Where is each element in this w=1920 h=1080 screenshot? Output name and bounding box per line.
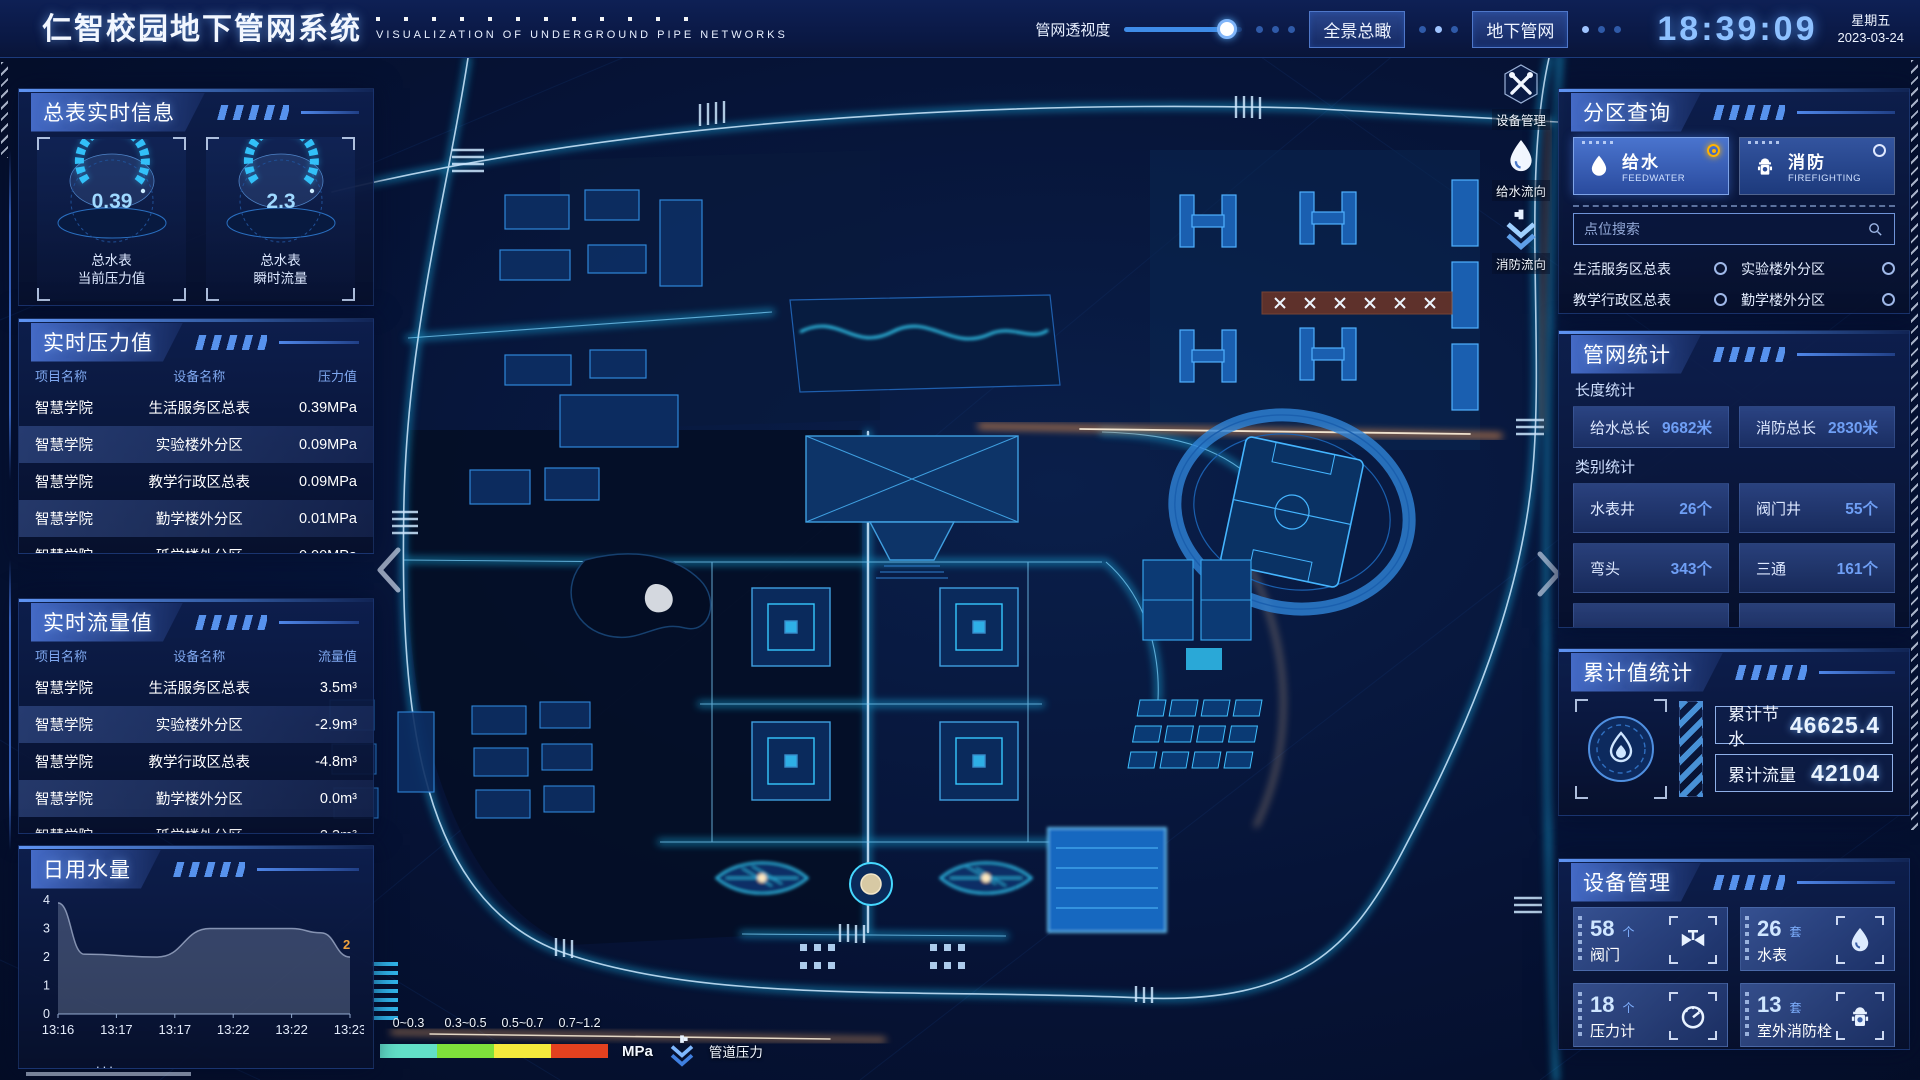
mode-sublabel: FIREFIGHTING: [1788, 173, 1861, 184]
project-cell: 智慧学院: [35, 677, 128, 698]
x-tick-label: 13:16: [42, 1022, 75, 1037]
firefighting-flow-tool[interactable]: 消防流向: [1492, 208, 1550, 274]
area-fill: [58, 903, 350, 1014]
svg-text:2.3: 2.3: [266, 190, 295, 213]
value-cell: -2.9m³: [270, 717, 357, 733]
left-edge-hatch: [1, 62, 8, 158]
mode-sublabel: FEEDWATER: [1622, 173, 1685, 184]
stat-label: 消防总长: [1756, 417, 1816, 438]
zone-item-label: 实验楼外分区: [1741, 259, 1825, 279]
stat-value: 2830米: [1828, 416, 1878, 438]
stat-value: 9682米: [1662, 416, 1712, 438]
legend-unit-label: MPa: [622, 1043, 653, 1060]
project-cell: 智慧学院: [35, 545, 128, 554]
cumulative-flow-row: 累计流量 42104: [1715, 754, 1893, 792]
top-bar: 仁智校园地下管网系统 VISUALIZATION OF UNDERGROUND …: [0, 0, 1920, 58]
table-row: 智慧学院教学行政区总表0.09MPa: [19, 463, 373, 500]
gauge-label: 总水表 瞬时流量: [206, 252, 355, 288]
table-row: 智慧学院砥学楼外分区0.00MPa: [19, 537, 373, 554]
pressure-table-body: 智慧学院生活服务区总表0.39MPa智慧学院实验楼外分区0.09MPa智慧学院教…: [19, 389, 373, 554]
legend-color-bar: [380, 1044, 608, 1058]
stat-chip: 水表井26个: [1573, 483, 1729, 533]
cumulative-saving-row: 累计节水 46625.4: [1715, 706, 1893, 744]
value-cell: 0.09MPa: [270, 437, 357, 453]
right-edge-hatch: [1911, 60, 1918, 830]
radio-icon: [1714, 262, 1727, 275]
device-cell: 实验楼外分区: [128, 714, 270, 735]
app-title: 仁智校园地下管网系统: [42, 4, 362, 48]
x-tick-label: 13:22: [275, 1022, 308, 1037]
project-cell: 智慧学院: [35, 471, 128, 492]
hydrant-icon: [1836, 992, 1884, 1040]
panel-title: 设备管理: [1571, 863, 1701, 902]
water-drop-icon: [1586, 153, 1612, 179]
flow-table-body: 智慧学院生活服务区总表3.5m³智慧学院实验楼外分区-2.9m³智慧学院教学行政…: [19, 669, 373, 834]
table-header: 项目名称 设备名称 流量值: [19, 639, 373, 669]
panel-title: 日用水量: [31, 850, 161, 889]
y-tick-label: 0: [43, 1007, 50, 1021]
pipe-ladder-decoration: [372, 962, 398, 1020]
device-management-panel: 设备管理 58个 阀门 26套 水表: [1558, 858, 1910, 1050]
dots-decoration: [1582, 26, 1621, 33]
stat-label: 水表井: [1590, 498, 1635, 519]
flow-arrows-icon: [667, 1034, 697, 1068]
value-cell: 0.01MPa: [270, 511, 357, 527]
project-cell: 智慧学院: [35, 825, 128, 834]
stripe-decoration: [1679, 701, 1703, 797]
device-cell: 教学行政区总表: [128, 751, 270, 772]
legend-color-segment: [380, 1044, 437, 1058]
slashes-decoration: [1713, 347, 1785, 362]
x-tick-label: 13:23: [334, 1022, 364, 1037]
device-cell: 教学行政区总表: [128, 471, 270, 492]
stat-chip: 阀门井55个: [1739, 483, 1895, 533]
gauge-label: 总水表 当前压力值: [37, 252, 186, 288]
device-management-tool[interactable]: 设备管理: [1492, 62, 1550, 130]
mode-label: 消防: [1788, 148, 1861, 173]
stat-chip: 弯头343个: [1573, 543, 1729, 593]
search-input[interactable]: 点位搜索: [1573, 213, 1895, 245]
legend-range-label: 0.3~0.5: [437, 1016, 494, 1030]
water-meter-icon: [1836, 916, 1884, 964]
slashes-decoration: [1713, 105, 1785, 120]
slider-knob[interactable]: [1217, 19, 1237, 39]
legend-color-segment: [551, 1044, 608, 1058]
stat-label: 阀门井: [1756, 498, 1801, 519]
legend-range-label: 0.5~0.7: [494, 1016, 551, 1030]
slashes-decoration: [1735, 665, 1807, 680]
device-cell: 砥学楼外分区: [128, 545, 270, 554]
table-row: 智慧学院生活服务区总表3.5m³: [19, 669, 373, 706]
app-subtitle: VISUALIZATION OF UNDERGROUND PIPE NETWOR…: [376, 29, 788, 41]
daily-water-panel: 日用水量 0123413:1613:1713:1713:2213:2213:23…: [18, 845, 374, 1069]
overview-button[interactable]: 全景总瞰: [1309, 11, 1405, 48]
radio-icon: [1882, 293, 1895, 306]
zone-item[interactable]: 生活服务区总表: [1573, 253, 1727, 284]
pressure-legend: 0~0.30.3~0.50.5~0.70.7~1.2 MPa 管道压力: [380, 1016, 767, 1068]
pipe-pressure-legend-item: 管道压力: [667, 1034, 767, 1068]
device-cell: 生活服务区总表: [128, 677, 270, 698]
panel-title: 分区查询: [1571, 93, 1701, 132]
zone-item-label: 教学行政区总表: [1573, 290, 1671, 310]
dots-decoration: [1256, 26, 1295, 33]
legend-flow-label: 管道压力: [705, 1040, 767, 1062]
section-title: 长度统计: [1559, 371, 1909, 406]
zone-item-label: 生活服务区总表: [1573, 259, 1671, 279]
table-header: 项目名称 设备名称 压力值: [19, 359, 373, 389]
hydrant-device-card[interactable]: 13套 室外消防栓: [1740, 983, 1895, 1047]
stat-chip: [1573, 603, 1729, 628]
slashes-decoration: [1713, 875, 1785, 890]
pressure-gauge-icon: [1669, 992, 1717, 1040]
mode-label: 给水: [1622, 148, 1685, 173]
value-cell: 0.0m³: [270, 791, 357, 807]
project-cell: 智慧学院: [35, 788, 128, 809]
zone-item[interactable]: 实验楼外分区: [1741, 253, 1895, 284]
valve-icon: [1669, 916, 1717, 964]
stat-label: 弯头: [1590, 558, 1620, 579]
underground-button[interactable]: 地下管网: [1472, 11, 1568, 48]
pressure-gauge-card: 0.39 总水表 当前压力值: [37, 137, 186, 301]
value-cell: 2.3m³: [270, 828, 357, 835]
clock-time: 18:39:09: [1657, 10, 1817, 49]
dots-decoration: [1419, 26, 1458, 33]
panel-title: 总表实时信息: [31, 93, 205, 132]
zone-item[interactable]: 勤学楼外分区: [1741, 284, 1895, 314]
project-cell: 智慧学院: [35, 434, 128, 455]
y-tick-label: 3: [43, 922, 50, 936]
gauge-dial-icon: 2.3: [215, 139, 347, 251]
table-row: 智慧学院勤学楼外分区0.01MPa: [19, 500, 373, 537]
value-cell: 0.09MPa: [270, 474, 357, 490]
legend-range-label: 0~0.3: [380, 1016, 437, 1030]
value-cell: 0.39MPa: [270, 400, 357, 416]
panel-title: 管网统计: [1571, 335, 1701, 374]
water-drop-icon: [1504, 137, 1538, 177]
dashed-divider: [1573, 205, 1895, 207]
search-icon[interactable]: [1867, 221, 1884, 238]
legend-range-label: 0.7~1.2: [551, 1016, 608, 1030]
daily-water-chart: 0123413:1613:1713:1713:2213:2213:232: [28, 892, 364, 1056]
valve-device-card[interactable]: 58个 阀门: [1573, 907, 1728, 971]
x-tick-label: 13:17: [159, 1022, 192, 1037]
transparency-slider-label: 管网透视度: [1035, 19, 1110, 40]
stat-value: 343个: [1671, 557, 1712, 579]
flow-gauge-card: 2.3 总水表 瞬时流量: [206, 137, 355, 301]
date-label: 2023-03-24: [1838, 29, 1905, 46]
left-scroll-track-lower: [9, 560, 11, 850]
x-tick-label: 13:17: [100, 1022, 133, 1037]
pan-left-arrow[interactable]: [372, 544, 406, 596]
project-cell: 智慧学院: [35, 397, 128, 418]
stat-label: 给水总长: [1590, 417, 1650, 438]
panel-title: 累计值统计: [1571, 653, 1723, 692]
water-meter-device-card[interactable]: 26套 水表: [1740, 907, 1895, 971]
radio-icon: [1714, 293, 1727, 306]
device-cell: 砥学楼外分区: [128, 825, 270, 834]
section-title: 类别统计: [1559, 448, 1909, 483]
radio-icon: [1882, 262, 1895, 275]
gauge-dial-icon: 0.39: [46, 139, 178, 251]
map-tool-stack: 设备管理 给水流向 消防流向: [1482, 62, 1560, 274]
date-box: 星期五 2023-03-24: [1838, 12, 1905, 46]
svg-text:0.39: 0.39: [91, 190, 132, 213]
project-cell: 智慧学院: [35, 751, 128, 772]
zone-query-panel: 分区查询 给水 FEEDWATER: [1558, 88, 1910, 314]
device-cell: 实验楼外分区: [128, 434, 270, 455]
radio-selected-icon: [1707, 144, 1720, 157]
device-cell: 勤学楼外分区: [128, 508, 270, 529]
firefighting-mode-button[interactable]: 消防 FIREFIGHTING: [1739, 137, 1895, 195]
legend-labels: 0~0.30.3~0.50.5~0.70.7~1.2: [380, 1016, 767, 1030]
project-cell: 智慧学院: [35, 714, 128, 735]
cumulative-stats-panel: 累计值统计 累计节水 46625.4 累: [1558, 648, 1910, 816]
pressure-gauge-device-card[interactable]: 18个 压力计: [1573, 983, 1728, 1047]
feedwater-flow-tool[interactable]: 给水流向: [1492, 137, 1550, 201]
slashes-decoration: [195, 615, 267, 630]
end-value-label: 2: [343, 937, 350, 952]
zone-item-label: 勤学楼外分区: [1741, 290, 1825, 310]
search-placeholder: 点位搜索: [1584, 219, 1867, 239]
stat-chip: 消防总长2830米: [1739, 406, 1895, 448]
flow-arrows-icon: [1501, 208, 1541, 250]
stat-value: 161个: [1837, 557, 1878, 579]
stat-value: 26个: [1679, 497, 1712, 519]
zone-item-list: 生活服务区总表实验楼外分区教学行政区总表勤学楼外分区砥学楼外分区宿舍区泵房: [1559, 253, 1909, 314]
y-tick-label: 1: [43, 979, 50, 993]
radio-icon: [1873, 144, 1886, 157]
stat-chip: 三通161个: [1739, 543, 1895, 593]
panel-title: 实时压力值: [31, 323, 183, 362]
x-tick-label: 13:22: [217, 1022, 250, 1037]
dashboard-root: ... 仁智校园地下管网系统 VISUALIZATION OF UNDERGRO…: [0, 0, 1920, 1080]
slashes-decoration: [195, 335, 267, 350]
y-tick-label: 2: [43, 950, 50, 964]
table-row: 智慧学院砥学楼外分区2.3m³: [19, 817, 373, 834]
stat-value: 55个: [1845, 497, 1878, 519]
water-drop-icon: [1583, 711, 1659, 787]
tools-icon: [1499, 62, 1543, 106]
weekday-label: 星期五: [1851, 12, 1890, 29]
table-row: 智慧学院实验楼外分区0.09MPa: [19, 426, 373, 463]
stat-chip: [1739, 603, 1895, 628]
y-tick-label: 4: [43, 893, 50, 907]
zone-item[interactable]: 教学行政区总表: [1573, 284, 1727, 314]
hydrant-icon: [1752, 153, 1778, 179]
flow-panel: 实时流量值 项目名称 设备名称 流量值 智慧学院生活服务区总表3.5m³智慧学院…: [18, 598, 374, 834]
value-cell: -4.8m³: [270, 754, 357, 770]
device-cell: 勤学楼外分区: [128, 788, 270, 809]
device-cell: 生活服务区总表: [128, 397, 270, 418]
dot-line: [376, 17, 694, 21]
left-scroll-track: [9, 150, 11, 480]
panel-title: 实时流量值: [31, 603, 183, 642]
meter-info-panel: 总表实时信息 0.39 总水表 当前压力值: [18, 88, 374, 306]
value-cell: 3.5m³: [270, 680, 357, 696]
mini-scrollbar-dots: ...: [96, 1056, 116, 1071]
table-row: 智慧学院生活服务区总表0.39MPa: [19, 389, 373, 426]
slider-fill: [1124, 27, 1227, 32]
stat-chip: 给水总长9682米: [1573, 406, 1729, 448]
pressure-panel: 实时压力值 项目名称 设备名称 压力值 智慧学院生活服务区总表0.39MPa智慧…: [18, 318, 374, 554]
transparency-slider[interactable]: [1124, 20, 1242, 38]
slashes-decoration: [173, 862, 245, 877]
stat-label: 三通: [1756, 558, 1786, 579]
network-sections: 长度统计给水总长9682米消防总长2830米类别统计水表井26个阀门井55个弯头…: [1559, 371, 1909, 628]
table-row: 智慧学院实验楼外分区-2.9m³: [19, 706, 373, 743]
project-cell: 智慧学院: [35, 508, 128, 529]
slashes-decoration: [217, 105, 289, 120]
brand: 仁智校园地下管网系统 VISUALIZATION OF UNDERGROUND …: [42, 4, 788, 48]
network-stats-panel: 管网统计 长度统计给水总长9682米消防总长2830米类别统计水表井26个阀门井…: [1558, 330, 1910, 628]
value-cell: 0.00MPa: [270, 548, 357, 555]
legend-color-segment: [494, 1044, 551, 1058]
water-saving-icon-frame: [1575, 699, 1667, 799]
feedwater-mode-button[interactable]: 给水 FEEDWATER: [1573, 137, 1729, 195]
legend-color-segment: [437, 1044, 494, 1058]
table-row: 智慧学院教学行政区总表-4.8m³: [19, 743, 373, 780]
table-row: 智慧学院勤学楼外分区0.0m³: [19, 780, 373, 817]
mini-scrollbar[interactable]: [26, 1072, 191, 1076]
